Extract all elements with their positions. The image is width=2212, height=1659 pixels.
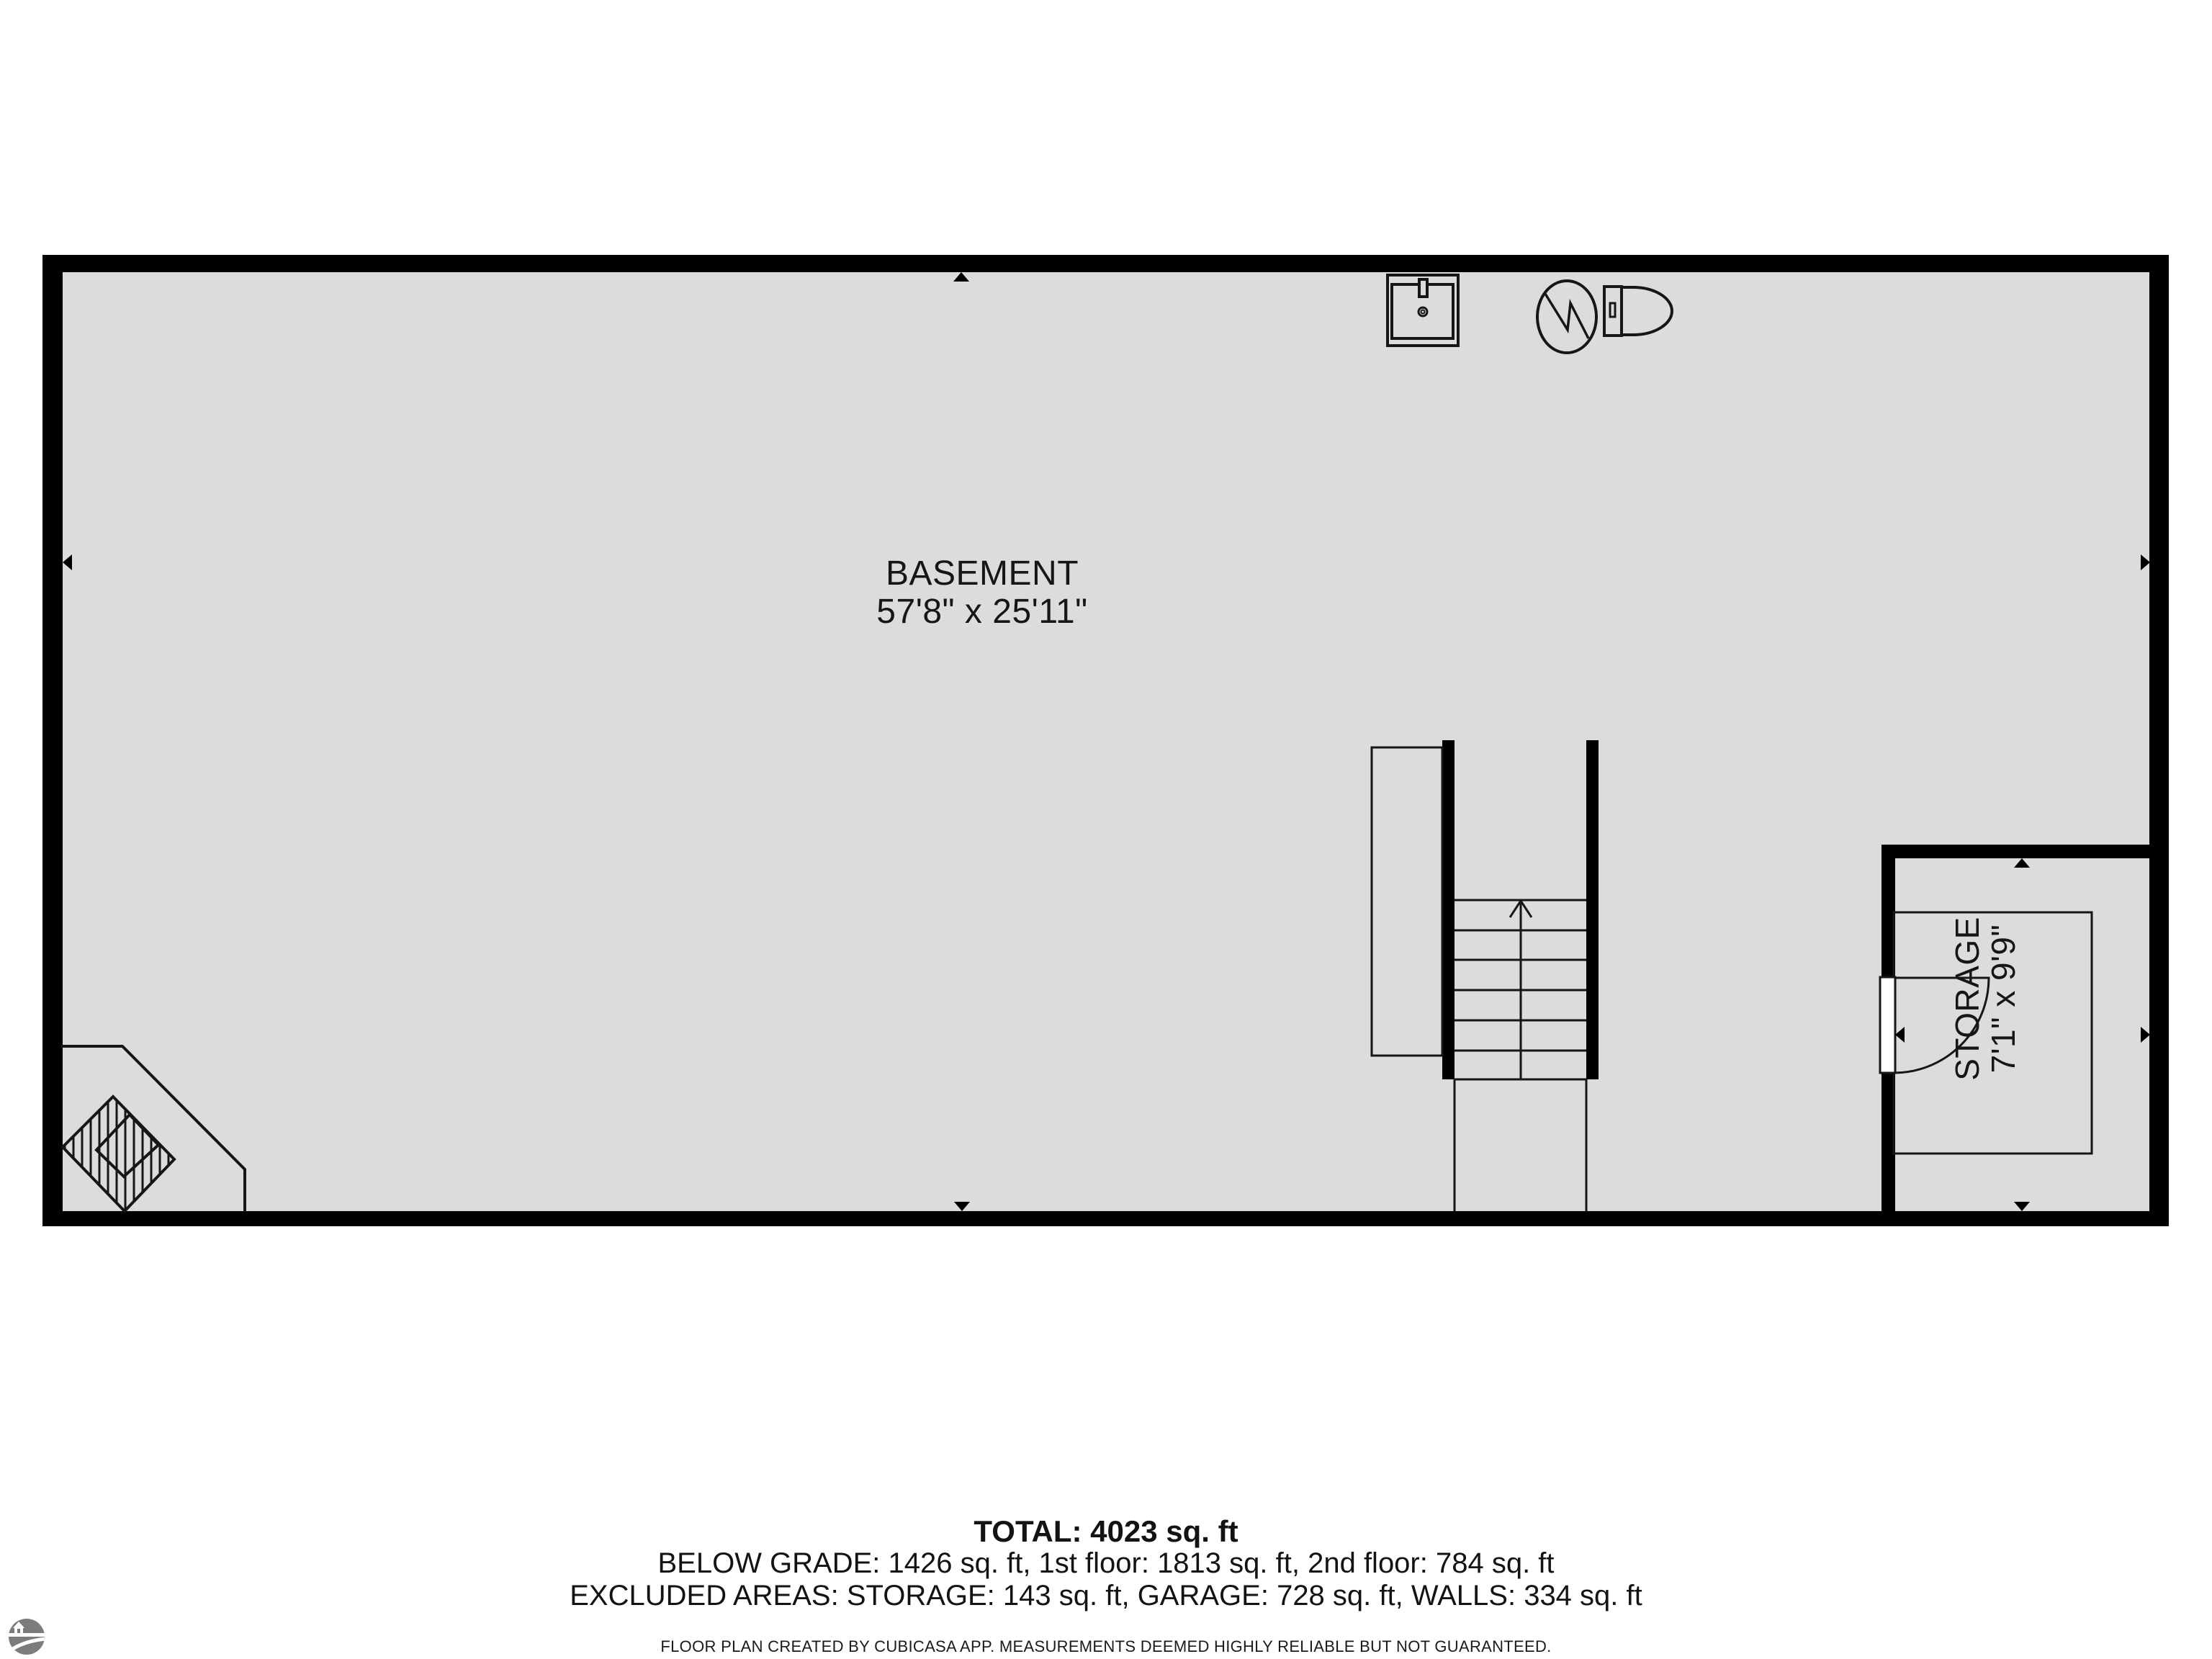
storage-room-name: STORAGE <box>1949 917 1985 1081</box>
door-leaf <box>1880 977 1895 1073</box>
total-area-text: TOTAL: 4023 sq. ft <box>0 1515 2212 1547</box>
stair-wall-right <box>1586 740 1599 1079</box>
floor-plan-drawing <box>0 0 2212 1659</box>
floor-plan-canvas: BASEMENT 57'8" x 25'11" STORAGE 7'1" x 9… <box>0 0 2212 1659</box>
storage-top-wall <box>1881 845 2149 858</box>
excluded-areas-text: EXCLUDED AREAS: STORAGE: 143 sq. ft, GAR… <box>0 1580 2212 1612</box>
logo-horizon-band <box>7 1633 46 1637</box>
stair-wall-left <box>1442 740 1455 1079</box>
area-summary: TOTAL: 4023 sq. ft BELOW GRADE: 1426 sq.… <box>0 1515 2212 1612</box>
room-label-basement: BASEMENT 57'8" x 25'11" <box>876 554 1087 631</box>
sink-faucet <box>1419 279 1427 297</box>
storage-room-dimensions: 7'1" x 9'9" <box>1985 917 2021 1081</box>
room-label-storage: STORAGE 7'1" x 9'9" <box>1949 917 2021 1081</box>
basement-floor <box>42 255 2169 1226</box>
basement-room-name: BASEMENT <box>876 554 1087 593</box>
floor-areas-text: BELOW GRADE: 1426 sq. ft, 1st floor: 181… <box>0 1547 2212 1580</box>
basement-room-dimensions: 57'8" x 25'11" <box>876 593 1087 631</box>
logo-house-door <box>17 1629 20 1633</box>
disclaimer-text: FLOOR PLAN CREATED BY CUBICASA APP. MEAS… <box>0 1637 2212 1656</box>
